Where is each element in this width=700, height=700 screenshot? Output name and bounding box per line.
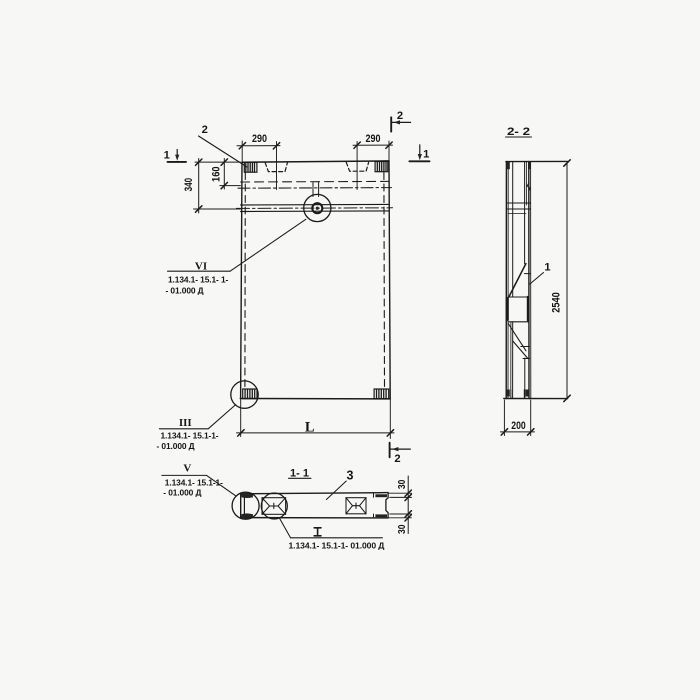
svg-text:200: 200: [511, 420, 526, 432]
svg-text:2540: 2540: [551, 292, 563, 313]
svg-text:2: 2: [202, 124, 208, 136]
svg-text:1- 1: 1- 1: [290, 467, 310, 479]
svg-text:1: 1: [423, 149, 429, 161]
svg-text:1.134.1- 15.1- 1-: 1.134.1- 15.1- 1-: [168, 275, 229, 285]
svg-text:290: 290: [252, 133, 267, 145]
svg-text:1.134.1- 15.1-1- 01.000 Д: 1.134.1- 15.1-1- 01.000 Д: [289, 541, 385, 551]
svg-text:1.134.1- 15.1-1-: 1.134.1- 15.1-1-: [161, 431, 219, 441]
svg-text:30: 30: [397, 479, 408, 489]
svg-text:160: 160: [210, 166, 222, 182]
svg-text:1.134.1- 15.1-1-: 1.134.1- 15.1-1-: [165, 477, 223, 487]
svg-text:290: 290: [366, 133, 381, 145]
svg-text:V: V: [183, 463, 191, 475]
svg-text:III: III: [179, 417, 192, 429]
svg-text:- 01.000 Д: - 01.000 Д: [163, 487, 201, 497]
svg-text:340: 340: [183, 178, 195, 192]
svg-text:- 01.000 Д: - 01.000 Д: [157, 441, 195, 451]
svg-text:- 01.000 Д: - 01.000 Д: [166, 286, 204, 296]
svg-text:L: L: [305, 419, 315, 435]
svg-text:2: 2: [394, 453, 400, 465]
svg-text:2- 2: 2- 2: [507, 126, 530, 138]
svg-text:2: 2: [397, 110, 403, 122]
svg-text:VI: VI: [195, 260, 207, 272]
svg-text:3: 3: [347, 469, 354, 483]
svg-text:30: 30: [397, 524, 408, 534]
svg-text:1: 1: [544, 262, 550, 274]
svg-text:1: 1: [164, 150, 170, 162]
